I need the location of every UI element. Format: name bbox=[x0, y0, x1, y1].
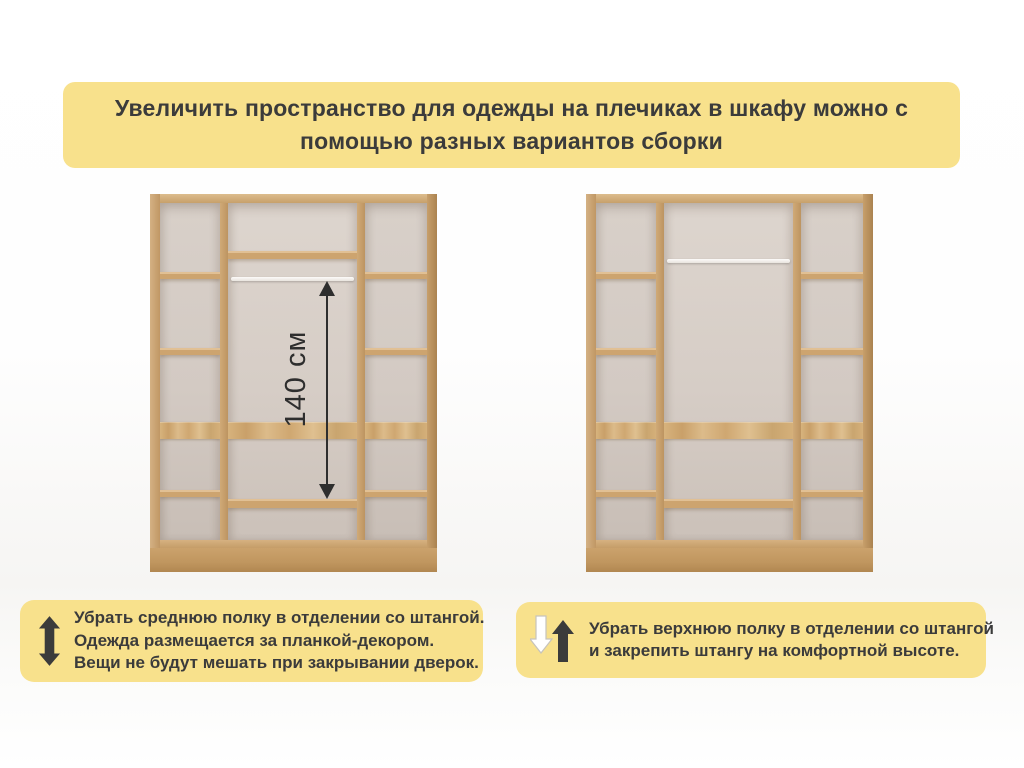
wardrobe-side-wall bbox=[150, 194, 160, 548]
dimension-arrowhead-down bbox=[319, 484, 335, 499]
wardrobe-back-panel bbox=[664, 203, 793, 540]
note-text: Убрать верхнюю полку в отделении со штан… bbox=[589, 618, 994, 663]
center-bottom-shelf bbox=[228, 499, 357, 508]
hanging-rod bbox=[667, 259, 790, 263]
center-bottom-shelf bbox=[664, 499, 793, 508]
note-line: Одежда размещается за планкой-декором. bbox=[74, 630, 484, 652]
wardrobe-floor bbox=[160, 540, 427, 548]
note-line: Убрать верхнюю полку в отделении со штан… bbox=[589, 618, 994, 640]
shelf bbox=[596, 272, 656, 279]
resize-vertical-arrow-icon bbox=[37, 615, 61, 667]
wardrobe-plinth bbox=[150, 548, 437, 572]
decor-plank bbox=[664, 422, 793, 439]
title-line-2: помощью разных вариантов сборки bbox=[300, 128, 723, 155]
wardrobe-side-wall bbox=[586, 194, 596, 548]
shelf bbox=[596, 348, 656, 355]
decor-plank bbox=[801, 422, 863, 439]
infographic-canvas: Увеличить пространство для одежды на пле… bbox=[0, 0, 1024, 768]
vertical-divider bbox=[357, 203, 365, 540]
vertical-divider bbox=[793, 203, 801, 540]
shelf bbox=[365, 348, 427, 355]
note-variant-1: Убрать среднюю полку в отделении со штан… bbox=[20, 600, 483, 682]
center-top-shelf bbox=[228, 251, 357, 259]
shelf bbox=[801, 272, 863, 279]
wardrobe-variant-2 bbox=[586, 194, 873, 572]
wardrobe-top-panel bbox=[150, 194, 437, 203]
vertical-divider bbox=[656, 203, 664, 540]
wardrobe-side-wall bbox=[863, 194, 873, 548]
shelf bbox=[365, 272, 427, 279]
decor-plank bbox=[596, 422, 656, 439]
shelf bbox=[160, 348, 220, 355]
title-banner: Увеличить пространство для одежды на пле… bbox=[63, 82, 960, 168]
note-line: Убрать среднюю полку в отделении со штан… bbox=[74, 607, 484, 629]
note-text: Убрать среднюю полку в отделении со штан… bbox=[74, 607, 484, 674]
shelf bbox=[801, 490, 863, 497]
wardrobe-top-panel bbox=[586, 194, 873, 203]
note-line: и закрепить штангу на комфортной высоте. bbox=[589, 640, 994, 662]
shelf bbox=[596, 490, 656, 497]
wardrobe-plinth bbox=[586, 548, 873, 572]
wardrobe-side-wall bbox=[427, 194, 437, 548]
wardrobe-floor bbox=[596, 540, 863, 548]
shelf bbox=[801, 348, 863, 355]
shelf bbox=[160, 490, 220, 497]
decor-plank bbox=[160, 422, 220, 439]
decor-plank bbox=[365, 422, 427, 439]
hanging-rod bbox=[231, 277, 354, 281]
wardrobe-variant-1: 140 см bbox=[150, 194, 437, 572]
vertical-divider bbox=[220, 203, 228, 540]
note-variant-2: Убрать верхнюю полку в отделении со штан… bbox=[516, 602, 986, 678]
shelf bbox=[160, 272, 220, 279]
down-up-arrows-icon bbox=[530, 615, 576, 665]
dimension-line bbox=[326, 294, 328, 486]
dimension-label: 140 см bbox=[275, 317, 317, 441]
note-line: Вещи не будут мешать при закрывании двер… bbox=[74, 652, 484, 674]
shelf bbox=[365, 490, 427, 497]
title-line-1: Увеличить пространство для одежды на пле… bbox=[115, 95, 908, 122]
